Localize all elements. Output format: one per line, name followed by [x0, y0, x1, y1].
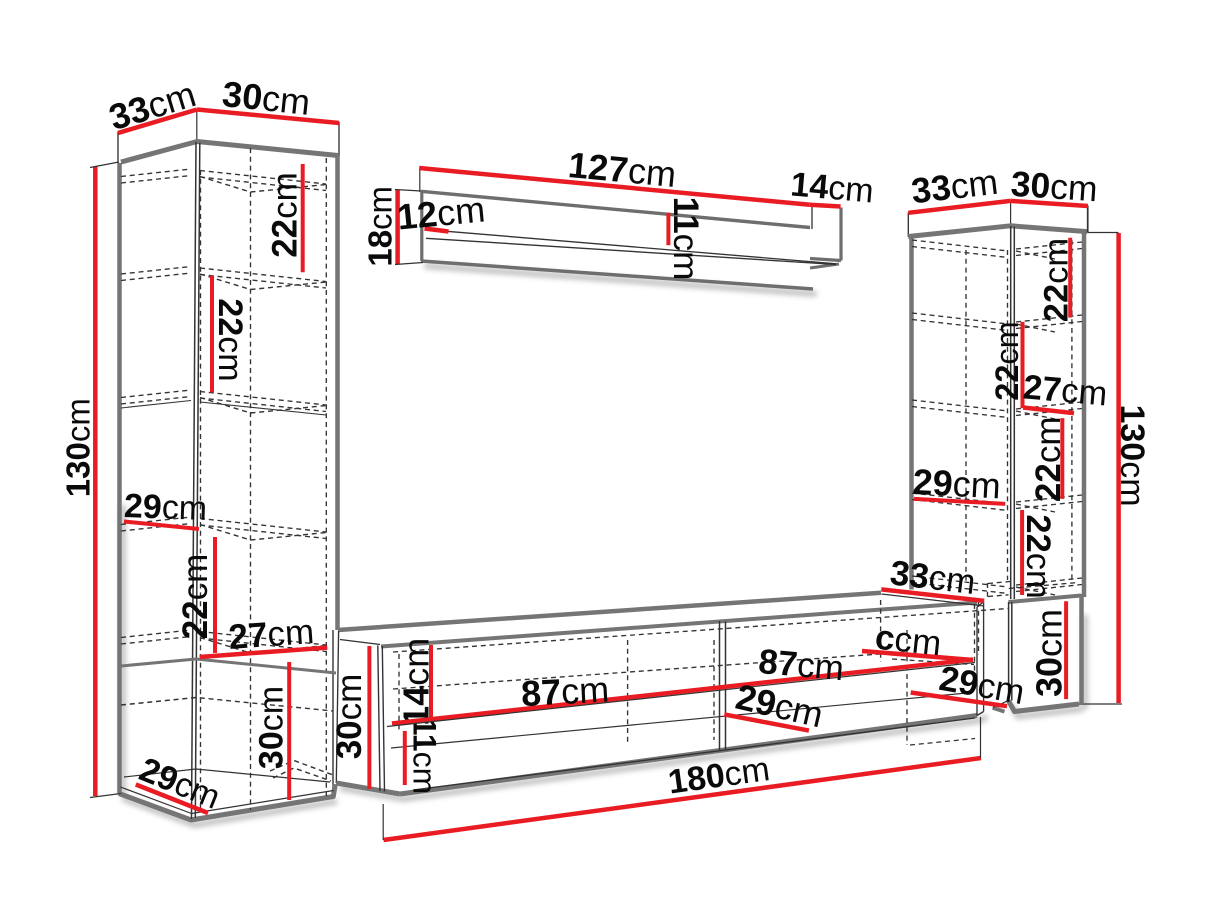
svg-text:29cm: 29cm — [123, 487, 207, 528]
svg-text:ccm: ccm — [873, 618, 943, 664]
svg-text:11cm: 11cm — [666, 197, 705, 281]
svg-text:12cm: 12cm — [395, 188, 487, 237]
svg-text:14cm: 14cm — [789, 165, 875, 210]
svg-text:22cm: 22cm — [1029, 417, 1068, 503]
svg-text:22cm: 22cm — [1038, 238, 1076, 322]
svg-text:130cm: 130cm — [59, 398, 96, 497]
svg-text:30cm: 30cm — [330, 674, 369, 760]
svg-text:130cm: 130cm — [1113, 404, 1151, 506]
svg-text:30cm: 30cm — [252, 686, 290, 769]
svg-text:87cm: 87cm — [520, 668, 610, 714]
svg-text:30cm: 30cm — [1028, 609, 1069, 697]
svg-text:14cm: 14cm — [395, 638, 436, 726]
svg-text:27cm: 27cm — [1021, 369, 1108, 414]
svg-text:22cm: 22cm — [211, 298, 249, 381]
svg-text:22cm: 22cm — [266, 172, 305, 258]
svg-text:29cm: 29cm — [912, 460, 1002, 506]
svg-text:30cm: 30cm — [1010, 164, 1099, 210]
svg-text:27cm: 27cm — [227, 612, 315, 657]
svg-text:11cm: 11cm — [406, 718, 442, 794]
svg-text:18cm: 18cm — [361, 186, 398, 267]
svg-text:22cm: 22cm — [989, 321, 1025, 400]
svg-text:22cm: 22cm — [176, 554, 215, 640]
